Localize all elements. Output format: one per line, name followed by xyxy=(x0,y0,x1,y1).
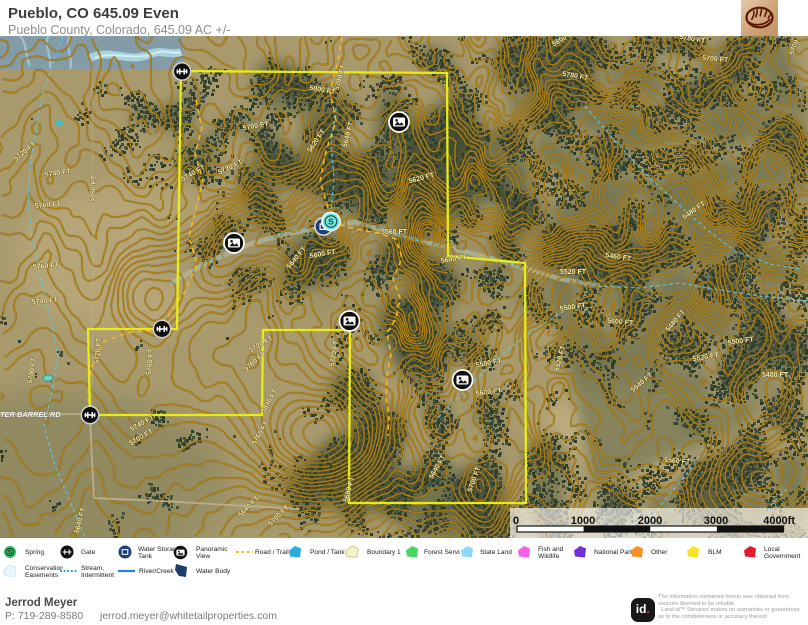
svg-text:4000ft: 4000ft xyxy=(763,515,795,527)
svg-text:TER BARREL RD: TER BARREL RD xyxy=(0,410,61,419)
svg-text:1000: 1000 xyxy=(571,515,595,527)
svg-text:5480 FT: 5480 FT xyxy=(762,372,789,379)
svg-text:5520 FT: 5520 FT xyxy=(560,269,587,276)
svg-text:2000: 2000 xyxy=(638,515,662,527)
svg-text:5560 FT: 5560 FT xyxy=(381,229,408,236)
svg-text:S: S xyxy=(328,217,334,227)
svg-text:3000: 3000 xyxy=(704,515,728,527)
svg-text:S: S xyxy=(8,550,13,557)
svg-text:0: 0 xyxy=(513,515,519,527)
